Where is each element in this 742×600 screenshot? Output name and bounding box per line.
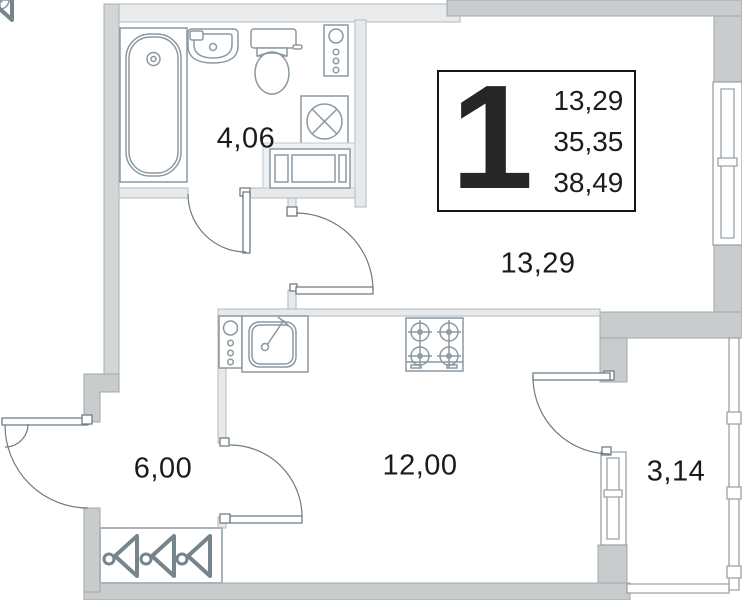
kitchen-window — [601, 452, 626, 545]
kitchen-door — [220, 438, 302, 523]
area-value-living: 13,29 — [553, 80, 623, 121]
living-room-window — [713, 82, 742, 245]
bathroom-door — [188, 188, 250, 253]
living-room-door — [287, 207, 373, 294]
washing-machine-icon — [301, 96, 348, 147]
room-label-bathroom: 4,06 — [217, 123, 275, 156]
area-value-total-with-balcony: 38,49 — [553, 162, 623, 203]
riser-pipes-icon — [324, 25, 348, 76]
unit-area-values: 13,29 35,35 38,49 — [553, 80, 623, 203]
unit-info-box: 1 13,29 35,35 38,49 — [437, 70, 636, 212]
room-label-balcony: 3,14 — [647, 456, 705, 489]
kitchen-sink-icon — [242, 316, 308, 372]
kitchen-riser-pipes-icon — [219, 316, 242, 368]
floor-plan: /* first burner drawn at 420,332 via tra… — [0, 0, 742, 600]
room-label-kitchen: 12,00 — [382, 450, 457, 483]
toilet-icon — [251, 29, 302, 94]
room-label-living-room: 13,29 — [500, 248, 575, 281]
balcony-door — [533, 371, 614, 455]
washbasin-icon — [188, 29, 238, 63]
room-label-hallway: 6,00 — [134, 453, 192, 486]
entrance-door — [2, 415, 92, 508]
cabinet-icon — [263, 143, 355, 188]
bathtub-icon — [120, 28, 187, 182]
area-value-total: 35,35 — [553, 121, 623, 162]
unit-number: 1 — [451, 86, 533, 190]
